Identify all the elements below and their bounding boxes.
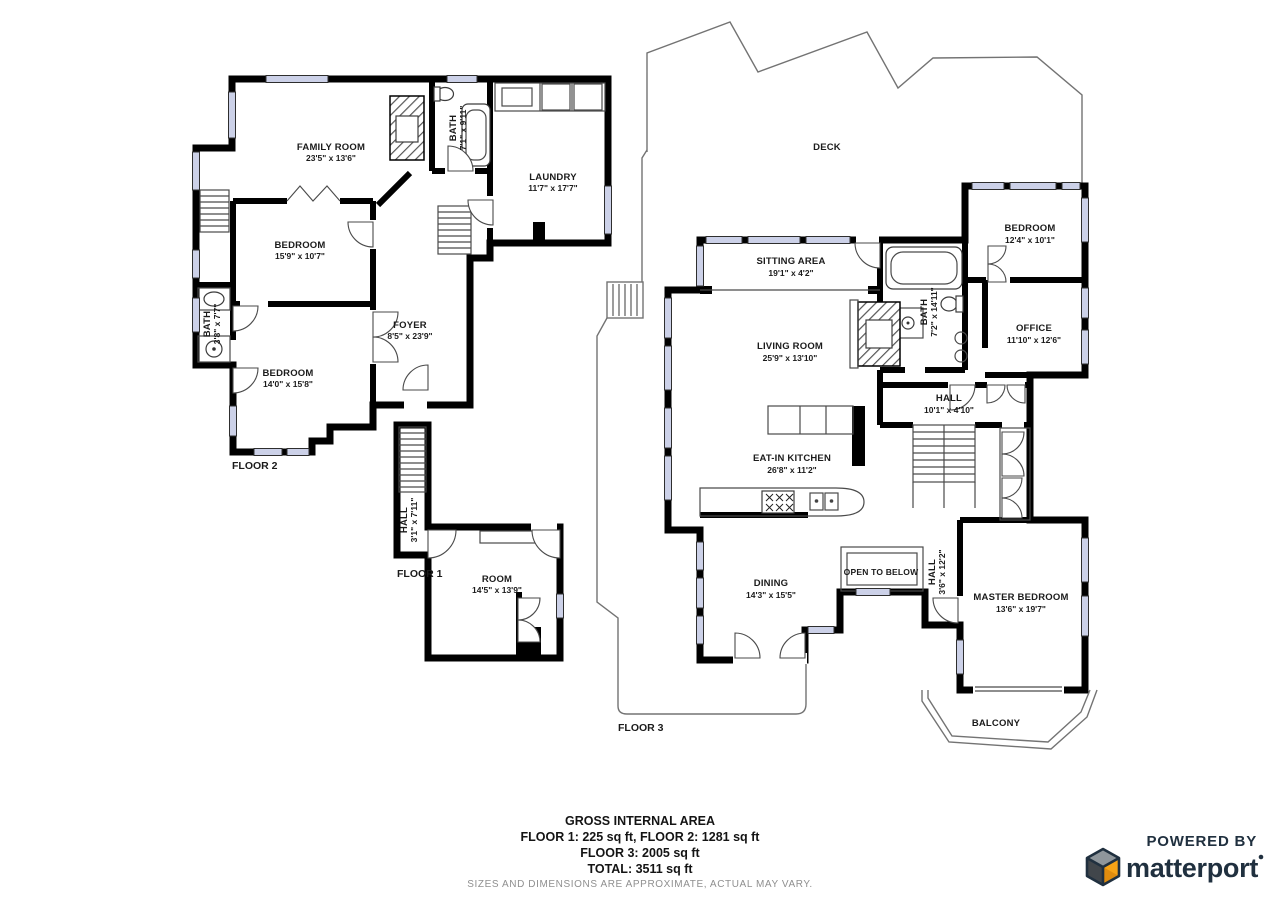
label-room: ROOM bbox=[482, 574, 512, 585]
disclaimer-text: SIZES AND DIMENSIONS ARE APPROXIMATE, AC… bbox=[467, 879, 812, 890]
dims-bath-f3: 7'2" x 14'11" bbox=[929, 287, 939, 336]
label-deck: DECK bbox=[813, 142, 841, 153]
area-line-3: TOTAL: 3511 sq ft bbox=[587, 862, 693, 876]
dims-laundry: 11'7" x 17'7" bbox=[528, 183, 577, 193]
trademark-dot bbox=[1259, 855, 1264, 860]
label-hall-upper: HALL bbox=[936, 393, 962, 404]
dims-office: 11'10" x 12'6" bbox=[1007, 335, 1061, 345]
dims-dining: 14'3" x 15'5" bbox=[746, 590, 796, 600]
label-kitchen: EAT-IN KITCHEN bbox=[753, 453, 831, 464]
label-bedroom-f3: BEDROOM bbox=[1004, 223, 1055, 234]
footer: GROSS INTERNAL AREA FLOOR 1: 225 sq ft, … bbox=[467, 814, 812, 890]
foyer-door-opening bbox=[404, 400, 427, 409]
dims-bedroom-f3: 12'4" x 10'1" bbox=[1005, 235, 1055, 245]
floorplan-svg: FAMILY ROOM 23'5" x 13'6" BATH 7'1" x 9'… bbox=[0, 0, 1280, 905]
dims-foyer: 8'5" x 23'9" bbox=[387, 331, 432, 341]
area-line-2: FLOOR 3: 2005 sq ft bbox=[580, 846, 700, 860]
toilet-f3 bbox=[941, 297, 957, 311]
area-line-1: FLOOR 1: 225 sq ft, FLOOR 2: 1281 sq ft bbox=[521, 830, 761, 844]
label-foyer: FOYER bbox=[393, 320, 427, 331]
floor2-plan: FAMILY ROOM 23'5" x 13'6" BATH 7'1" x 9'… bbox=[193, 76, 612, 473]
dims-room: 14'5" x 13'9" bbox=[472, 585, 522, 595]
dims-hall-upper: 10'1" x 4'10" bbox=[924, 405, 974, 415]
dims-family-room: 23'5" x 13'6" bbox=[306, 153, 356, 163]
matterport-logo: POWERED BY matterport bbox=[1087, 833, 1263, 885]
dims-living-room: 25'9" x 13'10" bbox=[763, 353, 818, 363]
label-sitting-area: SITTING AREA bbox=[756, 256, 825, 267]
floor3-label: FLOOR 3 bbox=[618, 722, 664, 734]
matterport-wordmark: matterport bbox=[1126, 853, 1258, 883]
dims-master-bedroom: 13'6" x 19'7" bbox=[996, 604, 1046, 614]
dims-sitting-area: 19'1" x 4'2" bbox=[768, 268, 813, 278]
label-dining: DINING bbox=[754, 578, 788, 589]
label-laundry: LAUNDRY bbox=[529, 172, 577, 183]
label-family-room: FAMILY ROOM bbox=[297, 142, 365, 153]
label-office: OFFICE bbox=[1016, 323, 1052, 334]
label-master-bedroom: MASTER BEDROOM bbox=[973, 592, 1068, 603]
label-bedroom-upper: BEDROOM bbox=[274, 240, 325, 251]
floorplan-canvas: FAMILY ROOM 23'5" x 13'6" BATH 7'1" x 9'… bbox=[0, 0, 1280, 905]
dims-bath-left: 3'8" x 7'7" bbox=[212, 304, 222, 344]
floor1-plan: HALL 3'1" x 7'11" ROOM 14'5" x 13'9" FLO… bbox=[397, 425, 564, 658]
label-bedroom-lower: BEDROOM bbox=[262, 368, 313, 379]
dims-hall-lower: 3'6" x 12'2" bbox=[937, 549, 947, 594]
floor3-plan: DECK SITTING AREA 19'1" x 4'2" BEDROOM 1… bbox=[597, 22, 1097, 749]
floor1-label: FLOOR 1 bbox=[397, 568, 443, 580]
label-open-below: OPEN TO BELOW bbox=[844, 567, 919, 577]
dims-kitchen: 26'8" x 11'2" bbox=[767, 465, 816, 475]
label-living-room: LIVING ROOM bbox=[757, 341, 823, 352]
dims-hall-f1: 3'1" x 7'11" bbox=[409, 498, 419, 543]
label-balcony: BALCONY bbox=[972, 718, 1021, 729]
gross-area-title: GROSS INTERNAL AREA bbox=[565, 814, 715, 828]
dims-bedroom-upper: 15'9" x 10'7" bbox=[275, 251, 325, 261]
floor2-label: FLOOR 2 bbox=[232, 460, 278, 472]
dims-bath-top: 7'1" x 9'11" bbox=[458, 106, 468, 151]
matterport-cube-icon bbox=[1087, 849, 1119, 885]
powered-by-text: POWERED BY bbox=[1146, 833, 1257, 850]
dims-bedroom-lower: 14'0" x 15'8" bbox=[263, 379, 313, 389]
